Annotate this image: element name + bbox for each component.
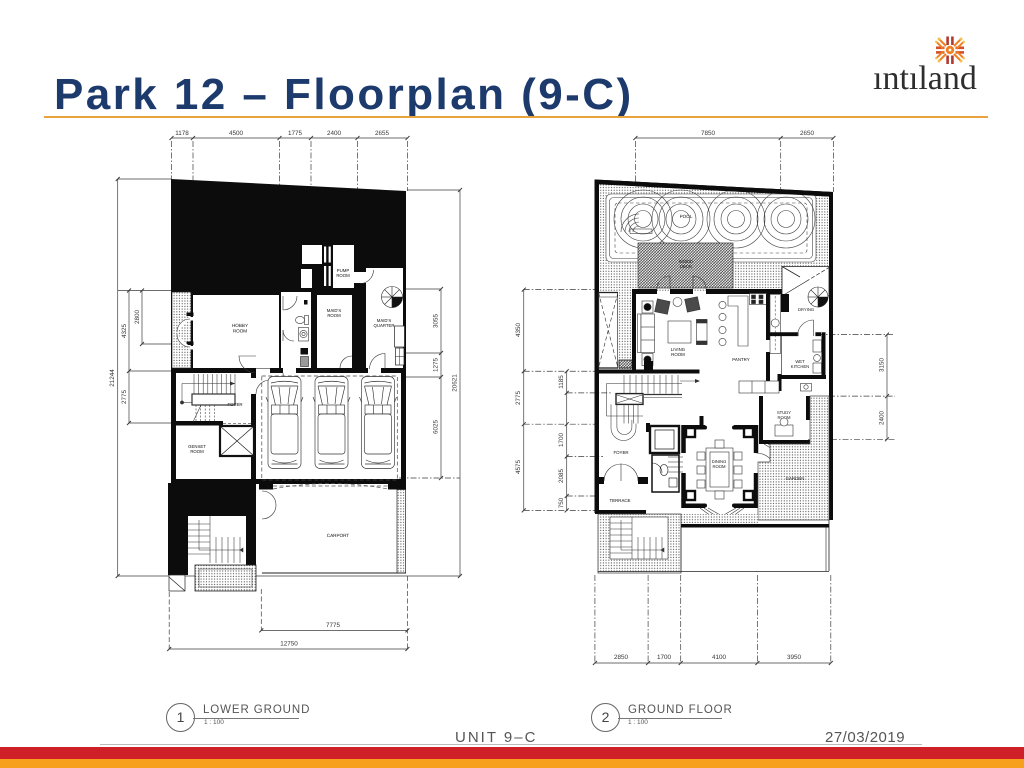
svg-text:4350: 4350 (515, 323, 522, 338)
svg-text:2775: 2775 (515, 391, 522, 406)
svg-text:2400: 2400 (879, 411, 886, 426)
svg-text:ROOM: ROOM (327, 313, 341, 318)
svg-text:750: 750 (558, 497, 565, 508)
svg-text:1178: 1178 (175, 130, 189, 137)
svg-text:ROOM: ROOM (336, 273, 350, 278)
svg-text:2850: 2850 (614, 654, 629, 661)
svg-text:3055: 3055 (433, 314, 440, 329)
svg-text:FOYER: FOYER (227, 402, 242, 407)
svg-text:DECK: DECK (680, 264, 692, 269)
svg-text:12750: 12750 (280, 641, 298, 648)
svg-text:4575: 4575 (515, 460, 522, 475)
svg-text:1775: 1775 (288, 130, 303, 137)
svg-text:ROOM: ROOM (712, 464, 726, 469)
svg-text:7775: 7775 (326, 622, 341, 629)
svg-text:KITCHEN: KITCHEN (791, 364, 809, 369)
svg-text:21244: 21244 (109, 369, 116, 387)
svg-text:1700: 1700 (558, 433, 565, 448)
svg-text:ROOM: ROOM (190, 449, 204, 454)
svg-text:3950: 3950 (787, 654, 802, 661)
svg-text:TERRACE: TERRACE (610, 498, 631, 503)
svg-text:1700: 1700 (657, 654, 672, 661)
svg-text:1275: 1275 (433, 358, 440, 373)
svg-text:7850: 7850 (701, 130, 716, 137)
svg-text:2400: 2400 (327, 130, 342, 137)
svg-text:POOL: POOL (680, 214, 693, 219)
svg-text:DRYING: DRYING (798, 307, 814, 312)
svg-text:GARDEN: GARDEN (786, 476, 805, 481)
svg-text:2800: 2800 (134, 310, 141, 325)
svg-text:ıntıland: ıntıland (873, 60, 977, 97)
svg-text:HOBBY: HOBBY (232, 323, 248, 328)
svg-text:ROOM: ROOM (233, 329, 247, 334)
svg-text:6025: 6025 (433, 420, 440, 435)
svg-text:2655: 2655 (375, 130, 390, 137)
svg-text:4100: 4100 (712, 654, 727, 661)
svg-text:1185: 1185 (558, 375, 565, 389)
svg-text:QUARTER: QUARTER (374, 323, 395, 328)
svg-text:4500: 4500 (229, 130, 244, 137)
svg-text:2775: 2775 (121, 390, 128, 405)
svg-text:FOYER: FOYER (613, 450, 628, 455)
svg-text:CARPORT: CARPORT (327, 533, 350, 538)
svg-text:PANTRY: PANTRY (732, 357, 749, 362)
svg-text:ROOM: ROOM (671, 352, 685, 357)
svg-text:4325: 4325 (121, 324, 128, 339)
svg-text:20621: 20621 (452, 374, 459, 392)
svg-text:3150: 3150 (879, 358, 886, 373)
svg-text:2085: 2085 (558, 469, 565, 484)
svg-text:2650: 2650 (800, 130, 815, 137)
